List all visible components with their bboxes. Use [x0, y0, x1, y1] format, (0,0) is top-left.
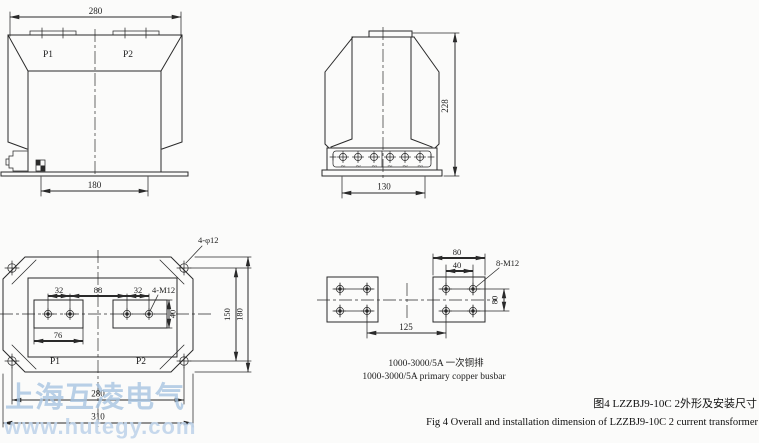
dim-228-label: 228 — [440, 99, 450, 113]
dim-150-label: 150 — [222, 308, 232, 321]
dim-130-label: 130 — [377, 182, 391, 192]
thread-callout-leader — [150, 295, 158, 311]
dim-80-top-label: 80 — [453, 247, 462, 257]
dim-32-right-label: 32 — [134, 285, 143, 295]
dim-180-right-label: 180 — [235, 308, 245, 321]
figure-caption-zh: 图4 LZZBJ9-10C 2外形及安装尺寸 — [593, 396, 757, 410]
primary-terminal-slots — [30, 28, 159, 38]
base-plate — [1, 172, 188, 176]
front-p2-label: P2 — [123, 50, 133, 60]
dim-125-label: 125 — [399, 322, 413, 332]
datum-checker-symbol — [36, 160, 45, 171]
pad-dim-extensions — [34, 294, 149, 344]
ground-terminal-bracket — [6, 151, 27, 171]
busbar-caption-en: 1000-3000/5A primary copper busbar — [362, 372, 506, 382]
dim-32-left-label: 32 — [55, 285, 64, 295]
busbar-plate-left — [327, 277, 378, 322]
terminal-label: 2S2 — [402, 164, 408, 168]
side-view-outline — [325, 31, 439, 148]
terminal-label: 1S1 — [340, 164, 346, 168]
dim-180-label: 180 — [88, 180, 102, 190]
terminal-label: 1S3 — [371, 164, 377, 168]
terminal-label: 2S3 — [417, 164, 423, 168]
terminal-label: 2S1 — [387, 164, 393, 168]
front-p1-label: P1 — [43, 50, 53, 60]
front-view: 280 180 P1 P2 — [1, 6, 188, 196]
secondary-terminals: 1S1 1S2 1S3 2S1 2S2 2S3 — [338, 152, 426, 168]
figure-caption-en: Fig 4 Overall and installation dimension… — [426, 417, 758, 428]
dim-88-label: 88 — [94, 285, 103, 295]
watermark-website: www.hutegy.com — [3, 414, 196, 439]
plan-p2-label: P2 — [136, 357, 146, 367]
watermark-company: 上海互凌电气 — [5, 381, 185, 414]
drawing-canvas: 280 180 P1 P2 1S1 1S2 1S3 2S1 2S2 2S3 — [0, 0, 759, 443]
dim-280-label: 280 — [89, 6, 103, 16]
mounting-hole-callout: 4-φ12 — [198, 235, 219, 245]
dim-80-right-label: 80 — [490, 296, 500, 305]
mounting-hole-callout-leader — [186, 246, 202, 263]
side-view: 1S1 1S2 1S3 2S1 2S2 2S3 130 228 — [322, 27, 459, 198]
watermark: 上海互凌电气 www.hutegy.com — [3, 381, 196, 439]
dim-40-label: 40 — [168, 310, 178, 319]
terminal-label: 1S2 — [355, 164, 361, 168]
figure-captions: 图4 LZZBJ9-10C 2外形及安装尺寸 Fig 4 Overall and… — [426, 396, 758, 428]
technical-drawing-page: 280 180 P1 P2 1S1 1S2 1S3 2S1 2S2 2S3 — [0, 0, 759, 443]
busbar-caption-zh: 1000-3000/5A 一次铜排 — [388, 357, 484, 369]
dim-76-label: 76 — [54, 330, 63, 340]
busbar-view: 80 40 8-M12 80 125 1000-3000/5A 一次铜排 100… — [317, 247, 519, 382]
thread-callout-4m12: 4-M12 — [152, 285, 175, 295]
busbar-plate-right — [433, 277, 485, 322]
terminal-screw-icon — [338, 152, 426, 163]
thread-callout-8m12: 8-M12 — [496, 258, 519, 268]
plan-p1-label: P1 — [50, 357, 60, 367]
dim-40-label: 40 — [453, 260, 462, 270]
